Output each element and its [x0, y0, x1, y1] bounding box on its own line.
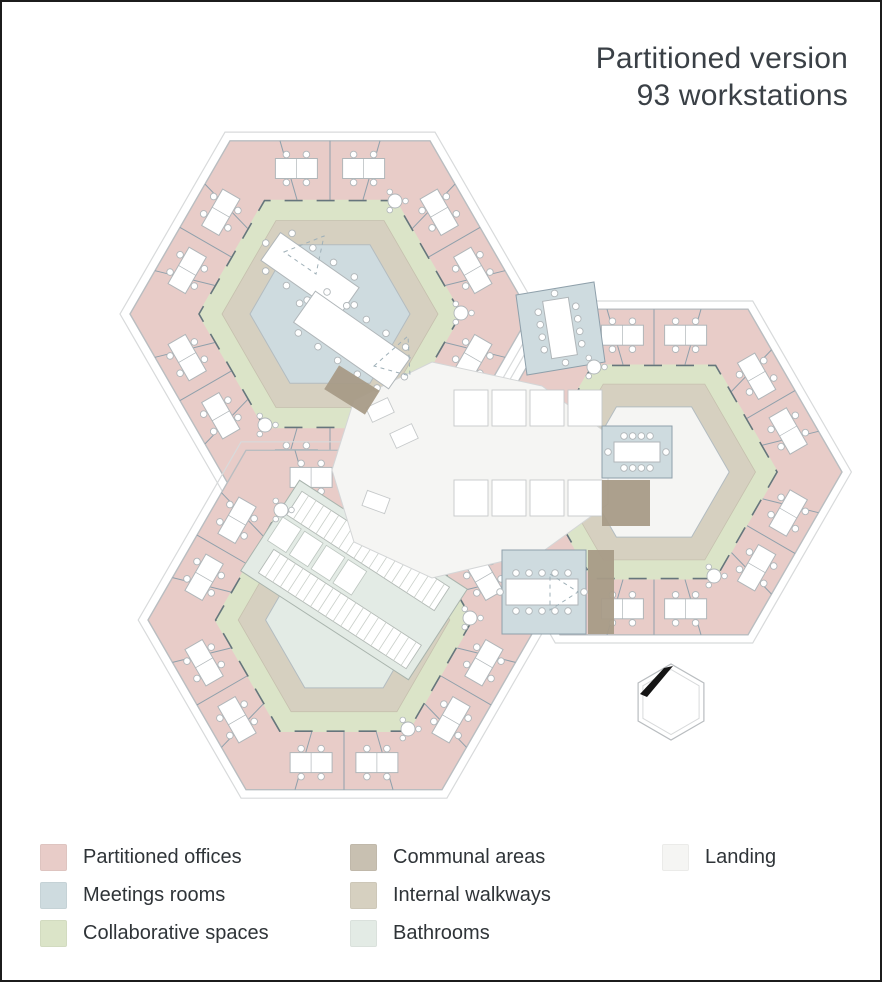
chair	[692, 620, 699, 627]
chair	[629, 592, 636, 599]
chair	[638, 465, 645, 472]
chair	[536, 321, 544, 329]
chair	[257, 413, 263, 419]
offices-swatch	[40, 844, 67, 871]
chair	[663, 449, 670, 456]
chair	[540, 346, 548, 354]
chair	[526, 608, 533, 615]
meetings-swatch	[40, 882, 67, 909]
legend-item-meetings-rooms: Meetings rooms	[40, 882, 350, 909]
legend-label: Meetings rooms	[83, 884, 225, 907]
chair	[672, 346, 679, 353]
chair	[621, 465, 628, 472]
chair	[370, 179, 377, 186]
legend-item-partitioned-offices: Partitioned offices	[40, 844, 350, 871]
chair	[534, 308, 542, 316]
chair	[586, 355, 592, 361]
chair	[629, 318, 636, 325]
phone-booth	[568, 480, 602, 516]
chair	[672, 620, 679, 627]
table-top	[614, 442, 660, 462]
chair	[497, 589, 504, 596]
chair	[350, 179, 357, 186]
chair	[692, 318, 699, 325]
chair	[609, 346, 616, 353]
chair	[638, 433, 645, 440]
table-top	[388, 194, 402, 208]
chair	[350, 151, 357, 158]
table-top	[454, 306, 468, 320]
chair	[384, 773, 391, 780]
chair	[539, 608, 546, 615]
chair	[672, 318, 679, 325]
chair	[453, 301, 459, 307]
legend-label: Bathrooms	[393, 922, 490, 945]
chair	[298, 773, 305, 780]
chair	[318, 460, 325, 467]
chair	[578, 340, 586, 348]
chair	[273, 516, 279, 522]
phone-booth	[530, 390, 564, 426]
chair	[416, 726, 422, 732]
legend-label: Partitioned offices	[83, 846, 242, 869]
table-top	[587, 360, 601, 374]
chair	[629, 465, 636, 472]
chair	[298, 460, 305, 467]
chair	[692, 592, 699, 599]
legend-item-bathrooms: Bathrooms	[350, 920, 662, 947]
phone-booth	[454, 390, 488, 426]
chair	[283, 442, 290, 449]
chair	[403, 198, 409, 204]
floor-plan-page: Partitioned version 93 workstations Part…	[0, 0, 882, 982]
chair	[364, 745, 371, 752]
chair	[303, 151, 310, 158]
chair	[298, 745, 305, 752]
chair	[387, 189, 393, 195]
table-top	[258, 418, 272, 432]
chair	[478, 615, 484, 621]
table-top	[707, 569, 721, 583]
chair	[318, 745, 325, 752]
north-hexagon	[638, 664, 704, 740]
legend-label: Communal areas	[393, 846, 545, 869]
phone-booth	[454, 480, 488, 516]
phone-booth	[568, 390, 602, 426]
chair	[565, 608, 572, 615]
phone-booth	[492, 480, 526, 516]
chair	[469, 310, 475, 316]
communal-swatch	[350, 844, 377, 871]
chair	[692, 346, 699, 353]
chair	[586, 373, 592, 379]
chair	[572, 302, 580, 310]
chair	[647, 433, 654, 440]
legend-label: Landing	[705, 846, 776, 869]
chair	[538, 333, 546, 341]
chair	[706, 582, 712, 588]
chair	[513, 608, 520, 615]
chair	[283, 179, 290, 186]
chair	[273, 422, 279, 428]
communal-area	[588, 550, 614, 634]
chair	[647, 465, 654, 472]
plan-title: Partitioned version 93 workstations	[596, 40, 848, 114]
landing-swatch	[662, 844, 689, 871]
legend-item-collaborative-spaces: Collaborative spaces	[40, 920, 350, 947]
chair	[551, 290, 559, 298]
legend-column-2: Communal areas Internal walkways Bathroo…	[350, 844, 662, 947]
north-indicator	[638, 664, 704, 740]
chair	[552, 608, 559, 615]
chair	[513, 570, 520, 577]
chair	[672, 592, 679, 599]
legend: Partitioned offices Meetings rooms Colla…	[40, 844, 852, 947]
chair	[602, 364, 608, 370]
legend-label: Internal walkways	[393, 884, 551, 907]
chair	[257, 431, 263, 437]
phone-booth	[492, 390, 526, 426]
communal-area	[602, 480, 650, 526]
chair	[289, 507, 295, 513]
chair	[576, 328, 584, 336]
table-top	[506, 579, 578, 605]
chair	[629, 620, 636, 627]
chair	[283, 151, 290, 158]
bathrooms-swatch	[350, 920, 377, 947]
chair	[539, 570, 546, 577]
chair	[621, 433, 628, 440]
floor-plan-group	[120, 132, 851, 798]
chair	[629, 433, 636, 440]
chair	[706, 564, 712, 570]
chair	[453, 319, 459, 325]
collaborative-swatch	[40, 920, 67, 947]
chair	[562, 359, 570, 367]
chair	[400, 735, 406, 741]
chair	[605, 449, 612, 456]
phone-booth	[530, 480, 564, 516]
walkways-swatch	[350, 882, 377, 909]
chair	[273, 498, 279, 504]
chair	[303, 179, 310, 186]
plan-title-line1: Partitioned version	[596, 40, 848, 77]
chair	[629, 346, 636, 353]
chair	[462, 606, 468, 612]
chair	[303, 442, 310, 449]
chair	[462, 624, 468, 630]
chair	[526, 570, 533, 577]
chair	[574, 315, 582, 323]
chair	[318, 773, 325, 780]
chair	[387, 207, 393, 213]
chair	[565, 570, 572, 577]
legend-item-internal-walkways: Internal walkways	[350, 882, 662, 909]
table-top	[463, 611, 477, 625]
chair	[364, 773, 371, 780]
chair	[370, 151, 377, 158]
chair	[400, 717, 406, 723]
legend-label: Collaborative spaces	[83, 922, 269, 945]
legend-column-1: Partitioned offices Meetings rooms Colla…	[40, 844, 350, 947]
legend-column-3: Landing	[662, 844, 852, 947]
chair	[581, 589, 588, 596]
floor-plan-drawing	[2, 2, 882, 982]
legend-item-communal-areas: Communal areas	[350, 844, 662, 871]
chair	[722, 573, 728, 579]
plan-title-line2: 93 workstations	[596, 77, 848, 114]
table-top	[401, 722, 415, 736]
table-top	[274, 503, 288, 517]
legend-item-landing: Landing	[662, 844, 852, 871]
chair	[609, 318, 616, 325]
chair	[384, 745, 391, 752]
